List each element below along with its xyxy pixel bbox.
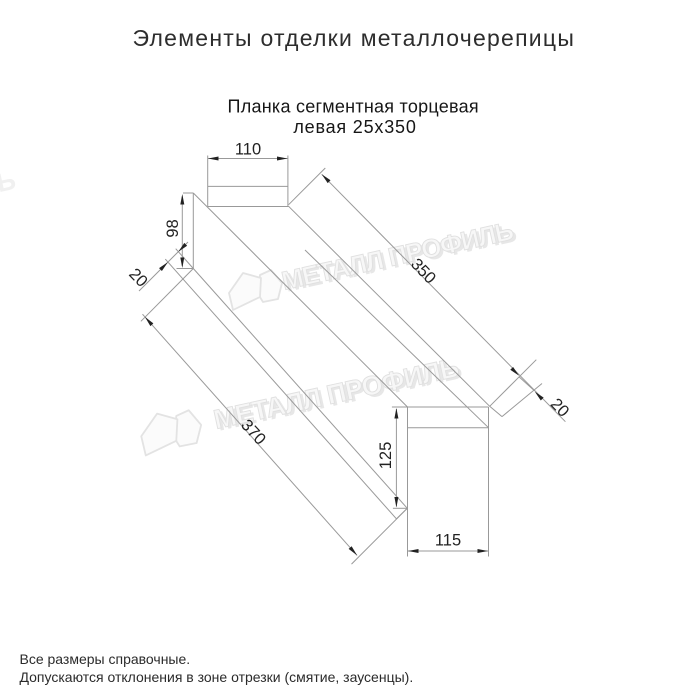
svg-text:125: 125 xyxy=(377,442,395,470)
svg-text:110: 110 xyxy=(235,141,261,159)
svg-text:МЕТАЛЛ ПРОФИЛЬ: МЕТАЛЛ ПРОФИЛЬ xyxy=(279,215,516,295)
svg-text:Все размеры справочные.: Все размеры справочные. xyxy=(20,651,191,667)
svg-text:Планка сегментная торцевая: Планка сегментная торцевая xyxy=(228,96,479,116)
svg-text:левая 25х350: левая 25х350 xyxy=(293,117,416,137)
svg-text:Элементы отделки металлочерепи: Элементы отделки металлочерепицы xyxy=(132,25,575,51)
svg-text:20: 20 xyxy=(547,395,573,421)
svg-text:Допускаются отклонения в зоне: Допускаются отклонения в зоне отрезки (с… xyxy=(20,669,414,685)
svg-text:98: 98 xyxy=(164,219,182,237)
svg-text:ЛЬ: ЛЬ xyxy=(0,165,18,202)
svg-text:20: 20 xyxy=(125,265,151,291)
svg-text:115: 115 xyxy=(435,532,461,550)
